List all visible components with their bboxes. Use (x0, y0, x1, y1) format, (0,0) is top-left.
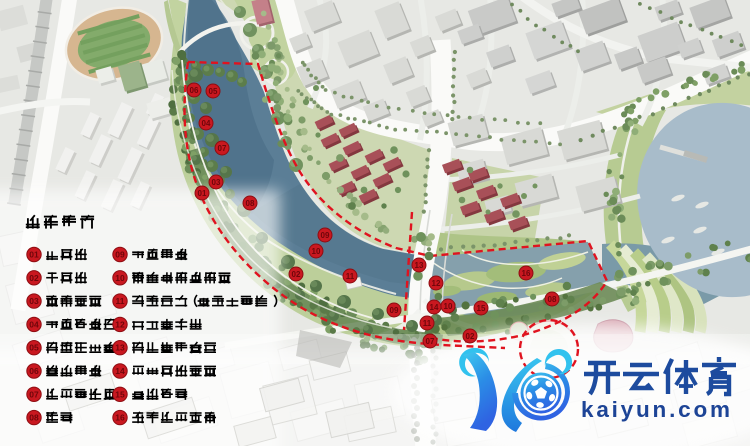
svg-text:13: 13 (115, 343, 125, 353)
svg-text:01: 01 (198, 189, 207, 198)
svg-text:10: 10 (312, 247, 321, 256)
svg-text:03: 03 (29, 296, 39, 306)
svg-text:10: 10 (444, 302, 453, 311)
svg-text:06: 06 (190, 86, 199, 95)
svg-text:07: 07 (218, 144, 227, 153)
svg-text:08: 08 (246, 199, 255, 208)
svg-text:04: 04 (202, 119, 211, 128)
svg-text:12: 12 (432, 279, 441, 288)
svg-text:10: 10 (115, 273, 125, 283)
svg-text:05: 05 (209, 87, 218, 96)
svg-text:09: 09 (321, 231, 330, 240)
svg-text:kaiyun.com: kaiyun.com (581, 397, 733, 422)
svg-text:14: 14 (430, 303, 439, 312)
svg-text:02: 02 (29, 273, 39, 283)
svg-text:14: 14 (115, 366, 125, 376)
svg-text:15: 15 (115, 389, 125, 399)
svg-text:07: 07 (29, 389, 39, 399)
svg-text:02: 02 (466, 332, 475, 341)
svg-text:07: 07 (426, 337, 435, 346)
svg-text:06: 06 (29, 366, 39, 376)
svg-text:02: 02 (292, 270, 301, 279)
svg-text:11: 11 (346, 272, 355, 281)
svg-text:01: 01 (29, 250, 39, 260)
svg-text:11: 11 (423, 319, 432, 328)
svg-text:16: 16 (522, 269, 531, 278)
svg-text:05: 05 (29, 343, 39, 353)
svg-text:03: 03 (212, 178, 221, 187)
svg-text:09: 09 (115, 250, 125, 260)
svg-text:09: 09 (390, 306, 399, 315)
svg-text:04: 04 (29, 319, 39, 329)
svg-text:15: 15 (477, 304, 486, 313)
svg-text:16: 16 (115, 413, 125, 423)
svg-text:08: 08 (548, 295, 557, 304)
svg-text:12: 12 (115, 319, 125, 329)
svg-text:08: 08 (29, 413, 39, 423)
svg-text:11: 11 (116, 296, 125, 306)
svg-text:13: 13 (415, 261, 424, 270)
